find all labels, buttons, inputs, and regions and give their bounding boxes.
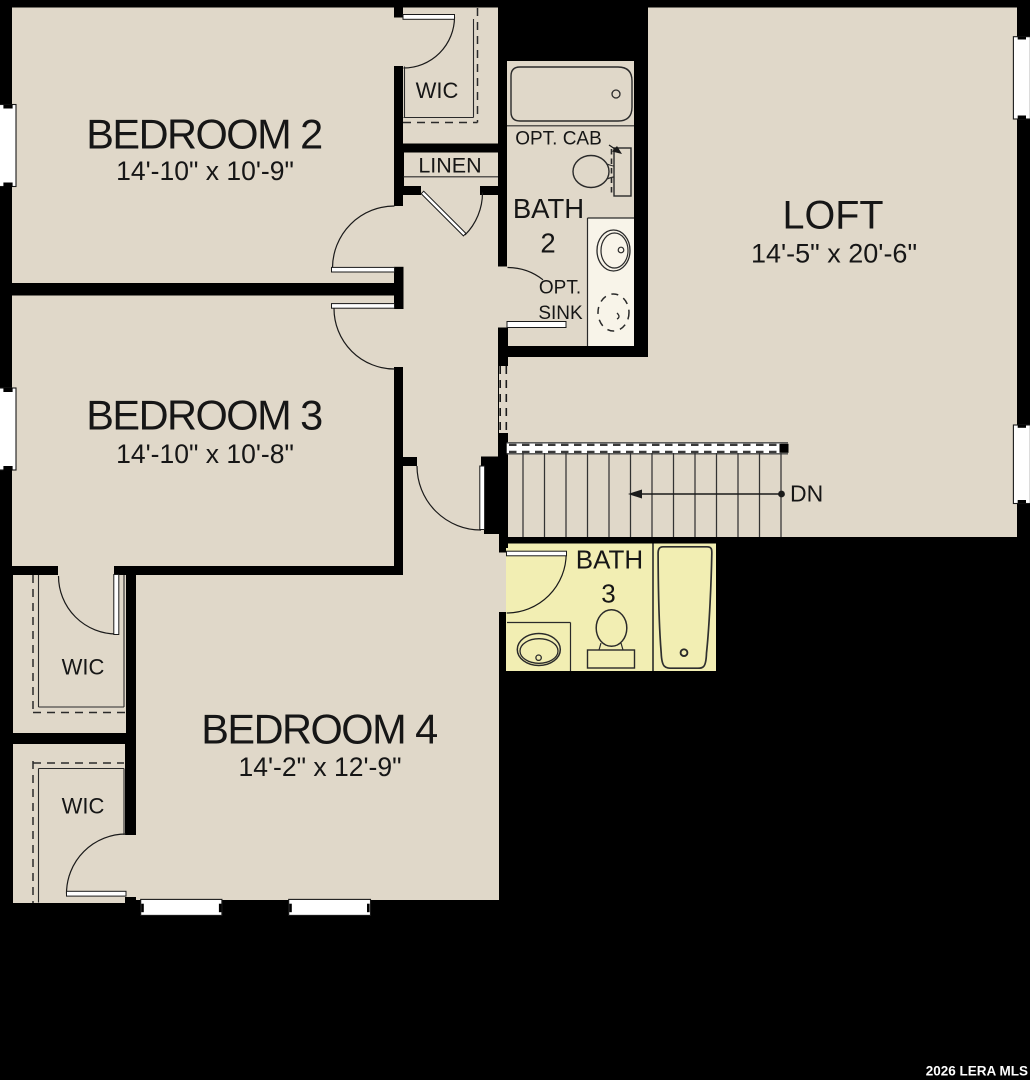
svg-text:OPT. CAB: OPT. CAB: [515, 129, 602, 150]
svg-text:3: 3: [601, 579, 615, 609]
svg-text:14'-5" x 20'-6": 14'-5" x 20'-6": [751, 239, 917, 269]
svg-text:14'-2" x 12'-9": 14'-2" x 12'-9": [239, 752, 402, 782]
svg-text:WIC: WIC: [416, 78, 459, 103]
svg-text:BATH: BATH: [513, 193, 584, 224]
svg-text:SINK: SINK: [538, 303, 583, 324]
svg-text:BEDROOM 2: BEDROOM 2: [86, 111, 322, 158]
svg-text:OPT.: OPT.: [539, 278, 581, 299]
svg-text:LINEN: LINEN: [418, 154, 481, 178]
svg-text:2026 LERA MLS: 2026 LERA MLS: [926, 1064, 1028, 1079]
svg-text:14'-10" x 10'-9": 14'-10" x 10'-9": [116, 156, 294, 186]
svg-text:BEDROOM 3: BEDROOM 3: [86, 392, 322, 439]
svg-text:14'-10" x 10'-8": 14'-10" x 10'-8": [116, 439, 294, 469]
svg-text:DN: DN: [790, 481, 823, 507]
svg-text:BEDROOM 4: BEDROOM 4: [201, 706, 437, 753]
svg-text:BATH: BATH: [576, 545, 643, 575]
svg-text:LOFT: LOFT: [783, 194, 884, 238]
svg-text:WIC: WIC: [62, 655, 105, 680]
svg-text:2: 2: [540, 228, 555, 259]
svg-text:WIC: WIC: [62, 794, 105, 819]
